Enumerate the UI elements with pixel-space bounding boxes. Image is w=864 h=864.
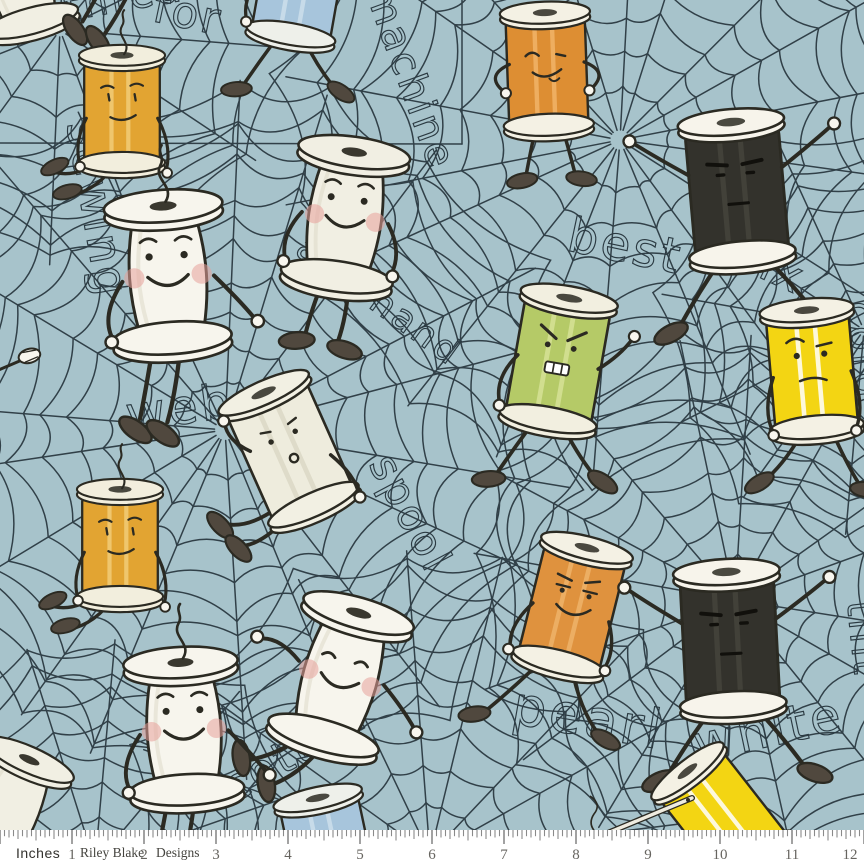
web-word-for: for (149, 0, 228, 46)
glove-hand (386, 270, 399, 283)
shoe (49, 615, 81, 636)
glove-hand (73, 596, 83, 606)
glove-hand (618, 581, 631, 594)
glove-hand (240, 16, 252, 28)
brand-name: Riley Blake (80, 845, 144, 861)
ruler-number-8: 8 (572, 847, 580, 863)
ruler: 123456789101112 Inches Riley Blake Desig… (0, 830, 864, 864)
ruler-number-3: 3 (212, 847, 220, 863)
ruler-number-7: 7 (500, 847, 508, 863)
spool-cream-bottom-corner (0, 728, 79, 830)
stray-glove-hand (0, 346, 42, 372)
shoe (506, 171, 539, 191)
glove-hand (250, 629, 265, 644)
shoe (795, 759, 835, 787)
ruler-number-10: 10 (713, 847, 728, 863)
shoe (221, 531, 256, 566)
web-word-spool: spool (359, 446, 462, 581)
glove-hand (501, 88, 511, 98)
shoe (325, 336, 364, 363)
glove-hand (160, 602, 170, 612)
fabric-print: threadformachinesewingbestsixcordweband … (0, 0, 864, 830)
ruler-number-5: 5 (356, 847, 364, 863)
glove-hand (263, 769, 276, 782)
glove-hand (828, 117, 841, 130)
web-word-tint: tint (838, 598, 864, 679)
glove-hand (768, 430, 779, 441)
shoe (651, 318, 691, 350)
web-word-best: best (563, 207, 688, 286)
brand-name-2: Designs (156, 845, 200, 861)
glove-hand (277, 254, 290, 267)
shoe (278, 331, 315, 350)
ruler-number-9: 9 (644, 847, 652, 863)
glove-hand (628, 330, 641, 343)
ruler-number-6: 6 (428, 847, 436, 863)
glove-hand (623, 135, 636, 148)
ruler-number-12: 12 (843, 847, 858, 863)
spiderweb-spools-print: threadformachinesewingbestsixcordweband … (0, 0, 864, 830)
ruler-number-1: 1 (68, 847, 76, 863)
spool-green-angry (469, 275, 654, 513)
spool-blue-top-edge (218, 0, 387, 121)
glove-hand (122, 786, 135, 799)
ruler-number-4: 4 (284, 847, 292, 863)
shoe (565, 169, 597, 187)
glove-hand (851, 425, 862, 436)
fabric-swatch-photo: threadformachinesewingbestsixcordweband … (0, 0, 864, 864)
shoe (324, 77, 358, 106)
ruler-number-11: 11 (785, 847, 799, 863)
ruler-unit-label: Inches (16, 845, 60, 861)
tick-marks (0, 830, 864, 844)
glove-hand (251, 315, 264, 328)
glove-hand (105, 336, 118, 349)
glove-hand (75, 162, 85, 172)
shoe (584, 466, 621, 498)
shoe (221, 81, 253, 97)
shoe (457, 704, 491, 723)
glove-hand (823, 571, 836, 584)
glove-hand (162, 168, 172, 178)
glove-hand (493, 399, 506, 412)
glove-hand (584, 85, 594, 95)
